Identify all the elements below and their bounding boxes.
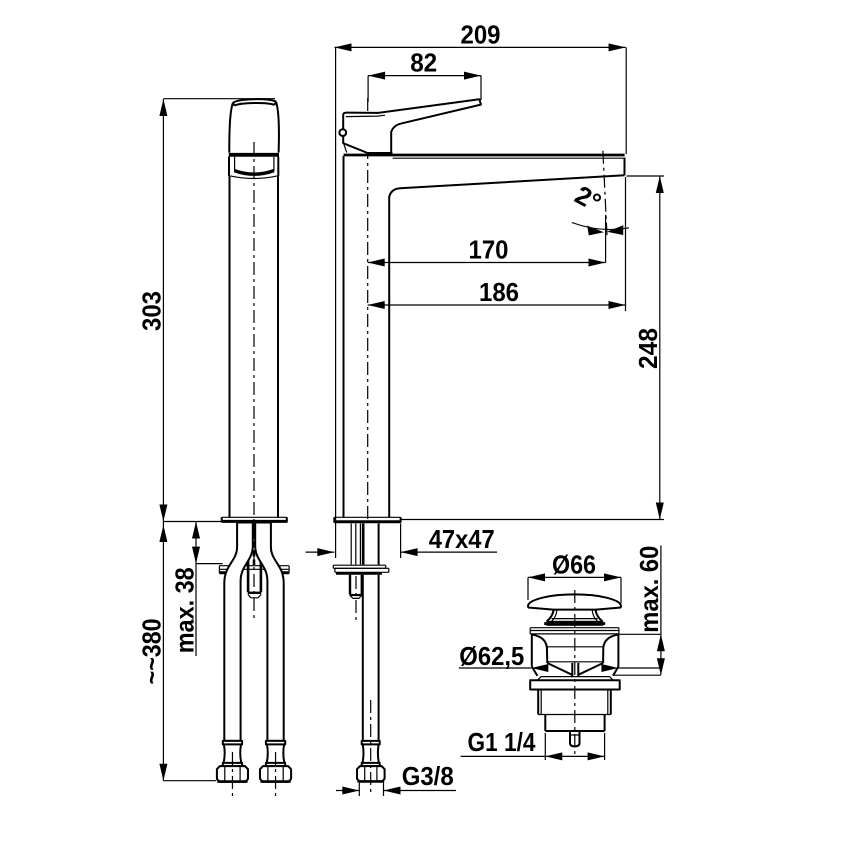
svg-text:186: 186 bbox=[479, 277, 519, 307]
svg-text:Ø62,5: Ø62,5 bbox=[459, 641, 524, 671]
svg-text:G3/8: G3/8 bbox=[402, 761, 454, 791]
svg-text:Ø66: Ø66 bbox=[552, 549, 596, 579]
svg-text:max. 38: max. 38 bbox=[170, 567, 200, 653]
svg-text:209: 209 bbox=[461, 19, 501, 49]
svg-text:82: 82 bbox=[410, 48, 437, 78]
svg-text:~~380: ~~380 bbox=[137, 618, 167, 684]
svg-text:170: 170 bbox=[469, 235, 509, 265]
svg-text:303: 303 bbox=[137, 291, 167, 331]
svg-text:248: 248 bbox=[633, 328, 663, 369]
svg-text:max. 60: max. 60 bbox=[634, 546, 664, 633]
svg-text:47x47: 47x47 bbox=[429, 524, 495, 554]
svg-text:G1 1/4: G1 1/4 bbox=[468, 727, 536, 757]
